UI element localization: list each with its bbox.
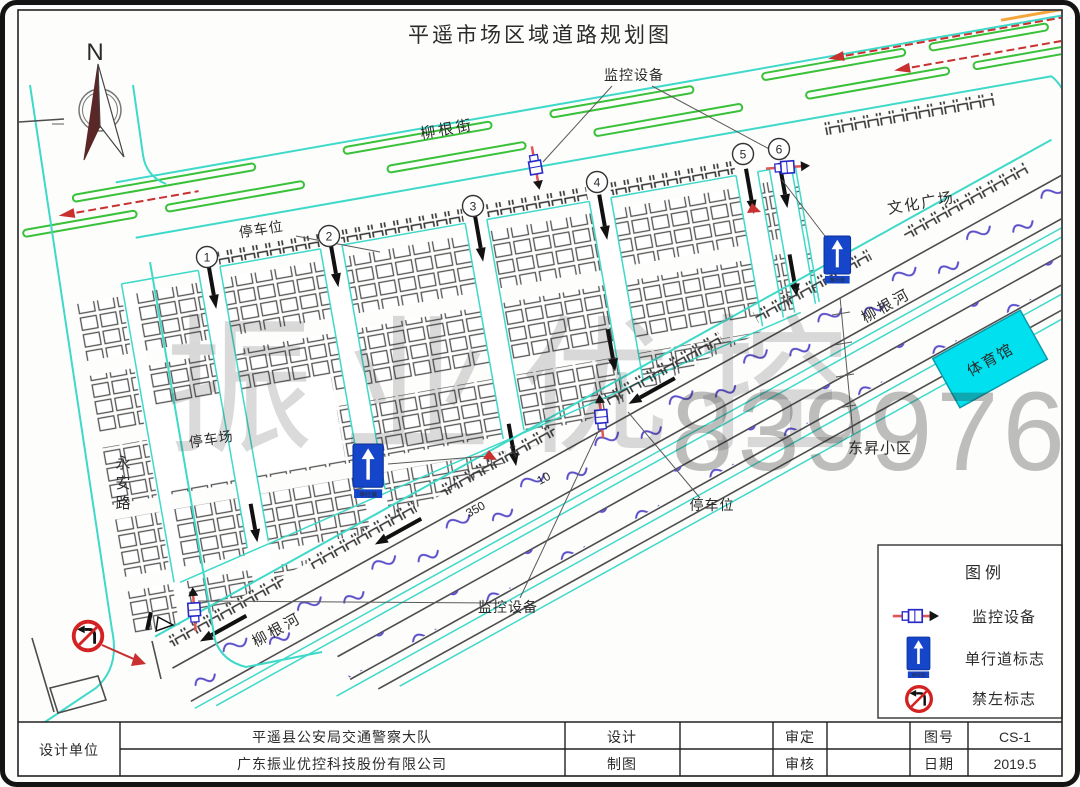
lane-marker-6: 6 xyxy=(769,139,790,160)
svg-text:2: 2 xyxy=(326,230,333,244)
svg-text:6: 6 xyxy=(776,143,783,157)
watermark-digits: 839976 xyxy=(671,369,1069,494)
lane-marker-1: 1 xyxy=(197,247,218,268)
legend-item-camera-label: 监控设备 xyxy=(972,609,1036,626)
north-label: N xyxy=(86,39,103,66)
drawing-title: 平遥市场区域道路规划图 xyxy=(408,24,672,47)
yongan-road-label: 永安路 xyxy=(114,455,131,515)
review-label: 审核 xyxy=(785,756,815,772)
lane-marker-2: 2 xyxy=(319,226,340,247)
design-label: 设计 xyxy=(607,729,637,745)
legend-one-way-icon xyxy=(907,637,930,679)
no-left-turn-sign-map xyxy=(74,622,103,651)
date-value: 2019.5 xyxy=(994,756,1037,772)
legend-title: 图例 xyxy=(965,564,1005,582)
date-label: 日期 xyxy=(924,756,954,772)
drawing-canvas: 单行道 xyxy=(0,0,1080,787)
one-way-sign-plaza xyxy=(824,236,851,284)
monitor-top-label: 监控设备 xyxy=(604,67,664,83)
svg-text:1: 1 xyxy=(204,251,211,265)
legend-box: 图例 监控设备 单行道标志 禁左标志 xyxy=(878,545,1062,718)
legend-no-left-icon xyxy=(907,687,932,712)
svg-text:3: 3 xyxy=(470,200,477,214)
lane-marker-3: 3 xyxy=(463,196,484,217)
svg-text:5: 5 xyxy=(740,148,747,162)
drawing-no-label: 图号 xyxy=(924,729,954,745)
legend-item-no-left-label: 禁左标志 xyxy=(972,691,1036,708)
title-block: 设计单位 平遥县公安局交通警察大队 广东振业优控科技股份有限公司 设计 制图 审… xyxy=(18,722,1062,776)
lane-marker-4: 4 xyxy=(587,172,608,193)
design-unit-label: 设计单位 xyxy=(39,742,99,758)
parking-spot-bottom-label: 停车位 xyxy=(690,497,735,513)
monitor-bottom-label: 监控设备 xyxy=(478,599,538,615)
svg-text:4: 4 xyxy=(594,176,601,190)
draft-label: 制图 xyxy=(607,756,637,772)
site-plan-svg: 单行道 xyxy=(0,0,1080,787)
drawing-company: 广东振业优控科技股份有限公司 xyxy=(237,756,447,772)
design-org: 平遥县公安局交通警察大队 xyxy=(252,729,432,745)
approve-label: 审定 xyxy=(785,729,815,745)
drawing-no-value: CS-1 xyxy=(999,729,1031,745)
lane-marker-5: 5 xyxy=(733,144,754,165)
legend-item-one-way-label: 单行道标志 xyxy=(965,651,1045,668)
